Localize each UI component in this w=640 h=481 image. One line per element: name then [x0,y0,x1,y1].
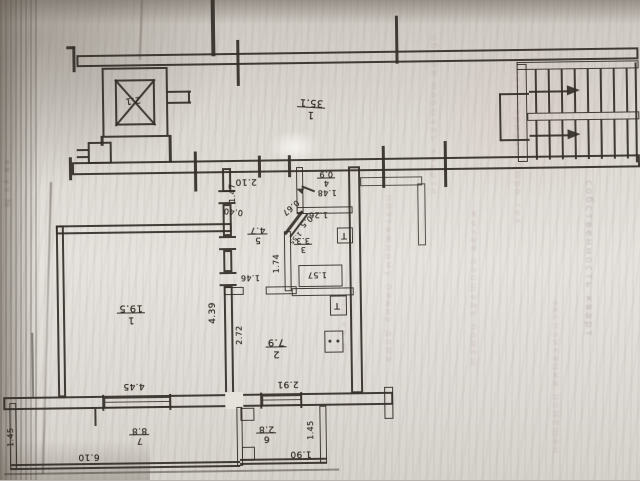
wall-end-cap [72,46,75,72]
wall-end-cap [66,46,75,49]
elevator-area-label: 2.1 [124,93,141,104]
scanned-paper-background: поэтажному плану дома общая площадь квар… [0,0,640,480]
stair-landing-line [527,111,639,121]
wall-tick [94,409,96,426]
wall-tick [77,156,89,158]
neighbor-wall [417,183,426,245]
room-4-label: 40.9 [317,169,335,187]
wall-hall-left [223,250,232,272]
wall-left-outer [56,225,66,397]
window-jamb [102,395,104,411]
dim-label: 1.46 [240,273,260,282]
faint-wall-left [31,333,34,397]
stair-top-wall [517,60,639,70]
room-2-label: 27.9 [265,336,286,358]
bathtub-dim-label: 1.57 [307,270,327,279]
dim-label: 0.40 [223,206,243,216]
stair-arrow-head [567,85,580,95]
room-5-label: 54.7 [248,224,268,244]
corridor-label: 135.1 [297,96,326,120]
loggia6-right-edge [319,406,327,464]
dim-label: 1.90 [290,448,312,458]
window-jamb [300,392,302,408]
door-jamb-tick [219,272,236,274]
room-6-label: 62.8 [257,422,277,442]
dim-label: 2.72 [236,325,245,345]
dim-label: 4.39 [209,302,219,324]
dim-label: 1.45 [7,428,16,448]
vent-shaft-box [88,142,112,164]
wall-stub-top-edge [211,0,215,56]
wall-hall-bottom [224,287,244,295]
dim-label: 1.45 [307,420,316,440]
wall-tick [194,152,198,192]
stove-box [324,330,343,352]
wall-tick [258,156,261,178]
dim-label: 1.47 [229,183,238,203]
wall-tick [395,16,399,64]
neighbor-wall [360,176,422,186]
room-7-label: 78.8 [130,424,150,444]
door-jamb-tick [220,284,237,286]
stair-landing-outline [499,93,502,141]
door-jamb-tick [219,236,236,238]
room-1-label: 119.5 [117,302,145,324]
wall-tick [444,141,448,187]
stair-landing-outline [500,139,530,142]
window-symbol [104,397,170,408]
corridor-number: 1 [307,108,314,119]
wall-bottom-right-cap [384,387,393,419]
stair-left-wall [517,64,528,162]
duct-line [188,91,191,104]
wall-right-outer [348,166,363,393]
loggia-hatch-box [242,447,255,461]
wall-tick [236,40,240,86]
window-jamb [260,393,262,409]
wall-room1-top [56,223,232,234]
kitchen-sink-glyph: Т [334,300,340,310]
stove-burner-dot [336,340,339,343]
window-symbol [262,395,301,406]
stair-landing-outline [499,93,529,96]
wall-end-cap [69,157,72,180]
balcony7-bottom-edge [10,465,240,470]
door-jamb-tick [219,248,236,250]
faint-bottom-line [4,469,339,475]
corridor-area: 35.1 [297,96,325,109]
wall-tick [288,155,291,177]
stair-arrow-head [567,129,580,139]
loggia6-bottom-edge [240,462,327,465]
bath-sink-glyph: Т [341,229,347,239]
dim-label: 1.74 [273,254,282,274]
wall-tick [77,149,89,151]
wall-segment [169,135,172,163]
dim-label: 6.10 [78,451,100,461]
dim-label: 2.91 [277,378,299,388]
dim-label: 4.45 [123,380,145,390]
window-jamb [169,394,171,410]
floor-plan-drawing: 135.1 2.1 [0,0,640,481]
wall-kitchen-left [224,286,235,395]
dim-label: 1.48 [317,188,337,197]
dim-label: 2.10 [235,176,257,186]
stove-burner-dot [328,340,331,343]
